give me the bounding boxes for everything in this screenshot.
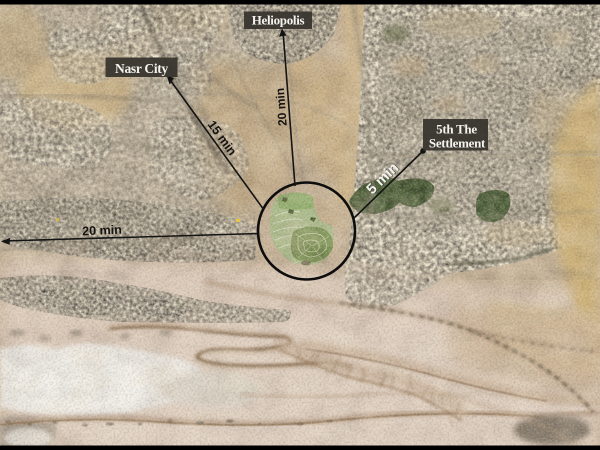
svg-text:5th The: 5th The (436, 122, 477, 137)
svg-text:Nasr City: Nasr City (115, 61, 168, 76)
svg-text:Heliopolis: Heliopolis (252, 13, 305, 28)
svg-text:20 min: 20 min (273, 87, 290, 126)
svg-text:Settlement: Settlement (429, 136, 486, 151)
svg-text:20 min: 20 min (82, 223, 122, 239)
